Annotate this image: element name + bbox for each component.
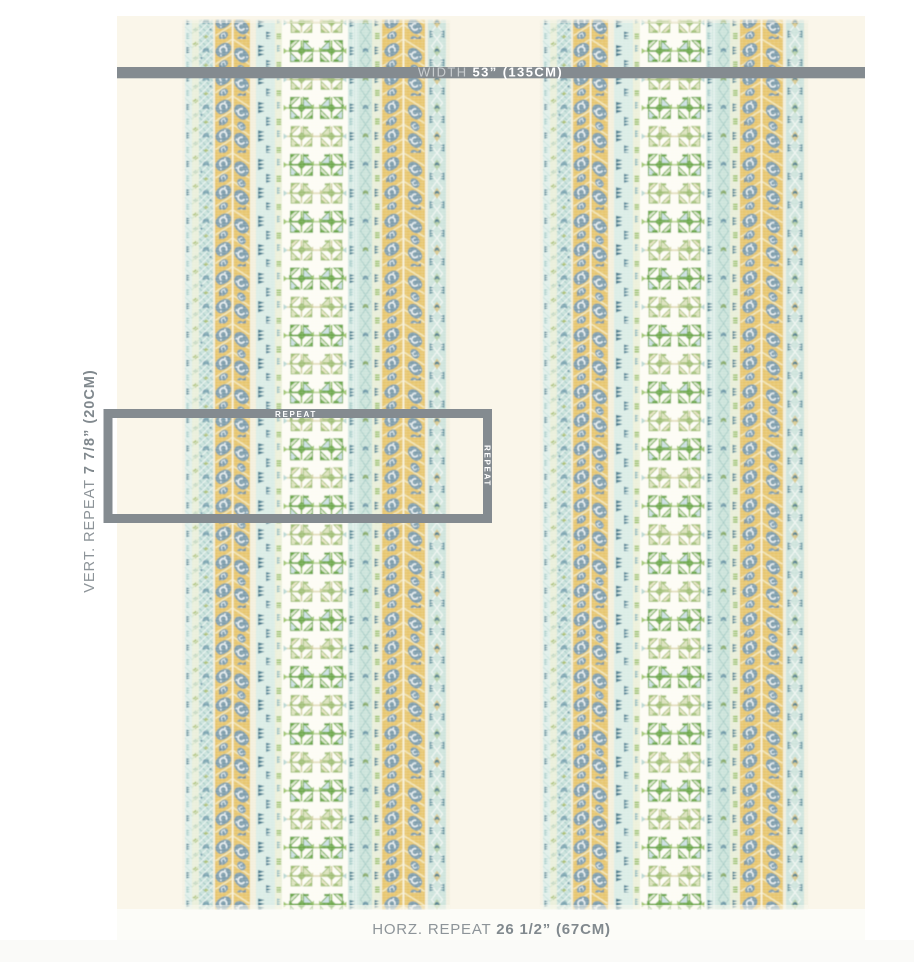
svg-text:VERT. REPEAT 7 7/8” (20CM): VERT. REPEAT 7 7/8” (20CM) [82,369,98,592]
svg-text:REPEAT: REPEAT [275,410,317,419]
svg-text:REPEAT: REPEAT [482,445,491,487]
svg-text:HORZ. REPEAT 26 1/2” (67CM): HORZ. REPEAT 26 1/2” (67CM) [372,921,611,938]
svg-text:WIDTH 53” (135CM): WIDTH 53” (135CM) [418,65,563,80]
